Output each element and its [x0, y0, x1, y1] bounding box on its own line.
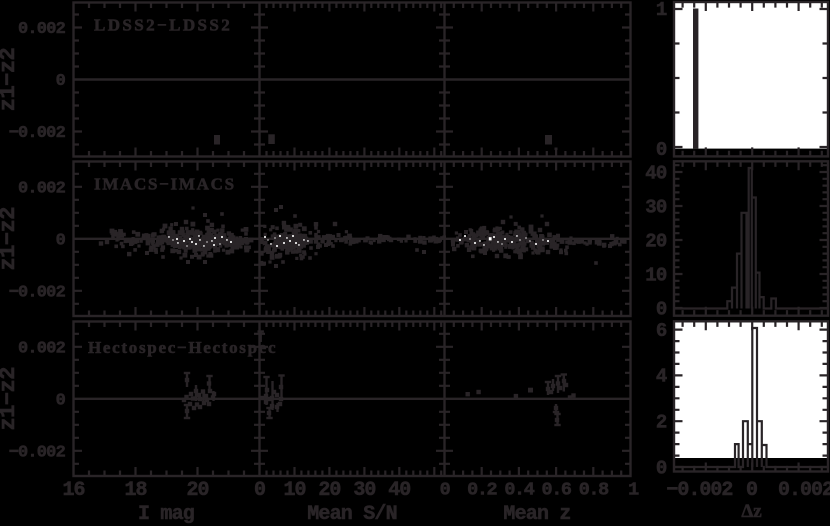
svg-text:40: 40 — [388, 479, 410, 502]
svg-text:0: 0 — [254, 479, 265, 502]
svg-text:0: 0 — [746, 479, 757, 502]
svg-text:Δz: Δz — [741, 501, 762, 522]
svg-text:I mag: I mag — [138, 503, 194, 526]
svg-text:z1−z2: z1−z2 — [0, 367, 21, 431]
svg-text:0: 0 — [656, 139, 667, 161]
svg-text:−0.002: −0.002 — [666, 479, 732, 502]
svg-text:Hectospec−Hectospec: Hectospec−Hectospec — [88, 338, 277, 357]
svg-text:Mean z: Mean z — [503, 503, 570, 526]
svg-text:0.002: 0.002 — [18, 340, 66, 359]
svg-text:0.4: 0.4 — [504, 480, 534, 501]
svg-text:0.2: 0.2 — [467, 480, 497, 501]
svg-text:16: 16 — [62, 479, 84, 502]
svg-text:0: 0 — [440, 480, 451, 501]
svg-text:40: 40 — [645, 162, 667, 184]
svg-text:0: 0 — [56, 72, 66, 91]
svg-text:0: 0 — [656, 298, 667, 320]
svg-text:z1−z2: z1−z2 — [0, 48, 21, 112]
svg-text:20: 20 — [645, 230, 667, 252]
svg-text:IMACS−IMACS: IMACS−IMACS — [94, 175, 236, 194]
svg-text:1: 1 — [628, 480, 639, 501]
svg-text:20: 20 — [186, 479, 208, 502]
svg-text:30: 30 — [645, 196, 667, 218]
svg-text:−0.002: −0.002 — [9, 284, 66, 303]
svg-text:0: 0 — [56, 232, 66, 251]
svg-text:4: 4 — [656, 366, 667, 388]
svg-text:Mean S/N: Mean S/N — [307, 503, 397, 526]
svg-text:10: 10 — [645, 264, 667, 286]
svg-text:0: 0 — [656, 457, 667, 479]
svg-text:18: 18 — [124, 479, 146, 502]
svg-text:0.6: 0.6 — [542, 480, 572, 501]
svg-text:0.002: 0.002 — [18, 20, 66, 39]
svg-text:30: 30 — [353, 479, 375, 502]
svg-text:−0.002: −0.002 — [9, 444, 66, 463]
svg-text:20: 20 — [318, 479, 340, 502]
svg-text:0.002: 0.002 — [778, 479, 830, 502]
svg-text:LDSS2−LDSS2: LDSS2−LDSS2 — [94, 16, 232, 35]
svg-text:0: 0 — [56, 392, 66, 411]
svg-text:1: 1 — [656, 0, 667, 21]
svg-text:0.8: 0.8 — [579, 480, 609, 501]
svg-text:6: 6 — [656, 320, 667, 342]
svg-text:2: 2 — [656, 412, 667, 434]
svg-text:0.002: 0.002 — [18, 180, 66, 199]
svg-text:z1−z2: z1−z2 — [0, 207, 21, 271]
svg-text:10: 10 — [283, 479, 305, 502]
svg-text:−0.002: −0.002 — [9, 124, 66, 143]
